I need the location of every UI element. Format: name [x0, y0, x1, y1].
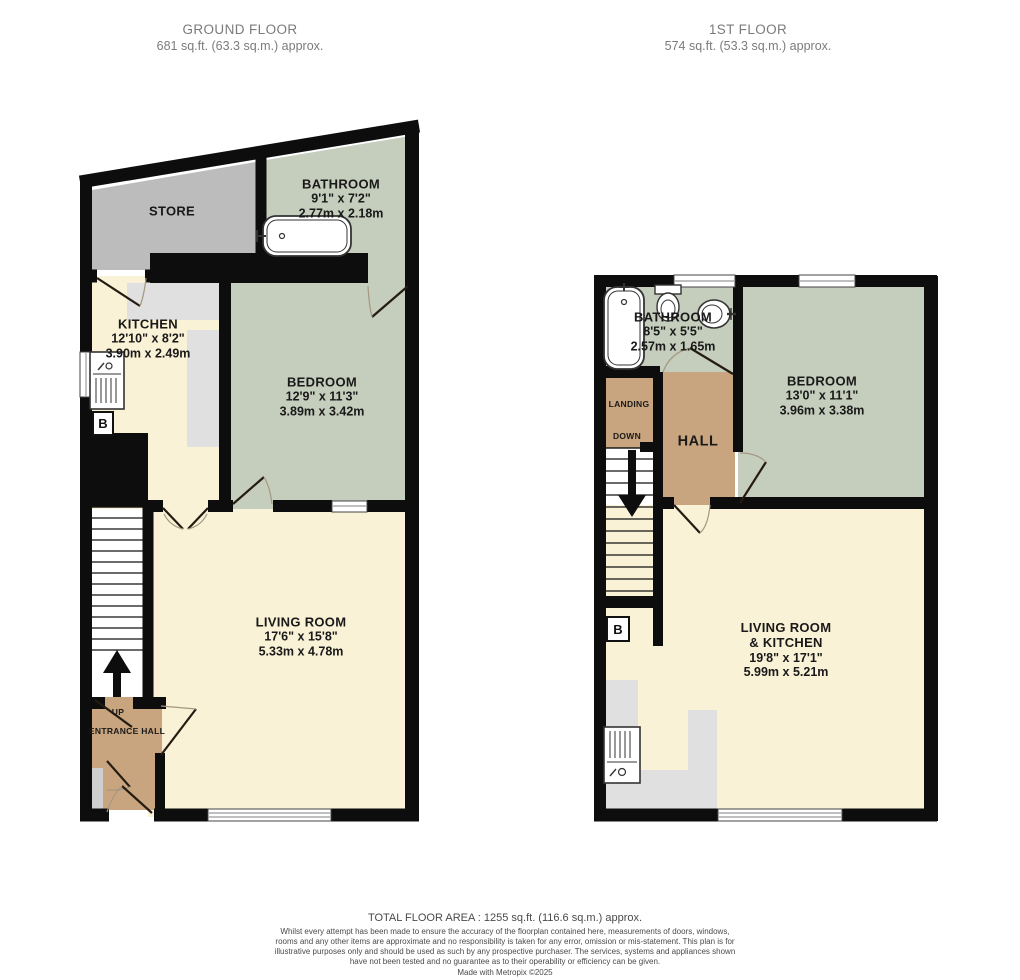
- ground-up-arrow: [103, 650, 131, 700]
- ground-store-label: STORE: [149, 203, 195, 218]
- floorplan-page: GROUND FLOOR 681 sq.ft. (63.3 sq.m.) app…: [0, 0, 1020, 980]
- first-landing-label: LANDING: [609, 399, 650, 409]
- ground-chimney-block: [84, 433, 148, 507]
- first-down-label: DOWN: [613, 431, 641, 441]
- disclaimer-text: Whilst every attempt has been made to en…: [270, 927, 740, 967]
- first-kitchen-sink: [604, 727, 640, 783]
- ground-bathtub: [256, 216, 351, 256]
- footer: TOTAL FLOOR AREA : 1255 sq.ft. (116.6 sq…: [270, 912, 740, 977]
- ground-up-label: UP: [112, 707, 124, 717]
- ground-living-room: [148, 509, 410, 817]
- ground-boiler-box: B: [92, 411, 114, 436]
- first-hall-label: HALL: [678, 433, 719, 450]
- ground-floor-plan: [80, 125, 419, 821]
- ground-stairs: [86, 507, 145, 700]
- ground-entrance-label: ENTRANCE HALL: [89, 726, 165, 736]
- ground-living-label: LIVING ROOM 17'6" x 15'8" 5.33m x 4.78m: [256, 615, 347, 660]
- floorplan-drawing: [0, 0, 1020, 980]
- first-living-label: LIVING ROOM & KITCHEN 19'8" x 17'1" 5.99…: [741, 620, 832, 680]
- first-floor-plan: [594, 275, 937, 821]
- first-boiler-box: B: [606, 616, 630, 642]
- total-floor-area: TOTAL FLOOR AREA : 1255 sq.ft. (116.6 sq…: [270, 912, 740, 924]
- ground-kitchen-counter: [187, 330, 222, 447]
- ground-bedroom-label: BEDROOM 12'9" x 11'3" 3.89m x 3.42m: [280, 375, 365, 420]
- first-bathroom-label: BATHROOM 8'5" x 5'5" 2.57m x 1.65m: [631, 310, 716, 355]
- made-with-credit: Made with Metropix ©2025: [270, 968, 740, 977]
- ground-kitchen-label: KITCHEN 12'10" x 8'2" 3.90m x 2.49m: [106, 317, 191, 362]
- first-bedroom-label: BEDROOM 13'0" x 11'1" 3.96m x 3.38m: [780, 374, 865, 419]
- ground-bathroom-label: BATHROOM 9'1" x 7'2" 2.77m x 2.18m: [299, 177, 384, 222]
